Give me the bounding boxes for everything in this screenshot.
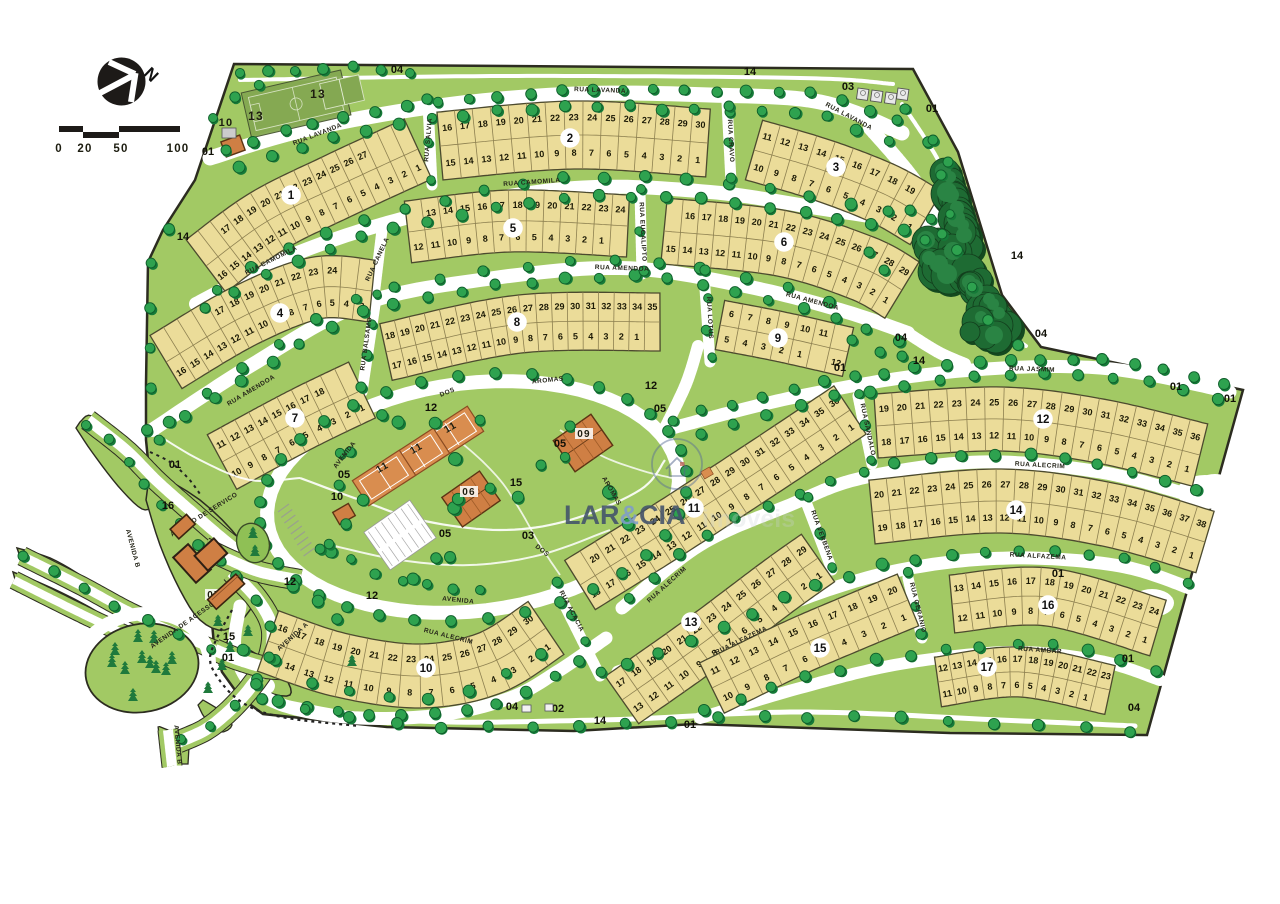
- svg-text:20: 20: [1057, 660, 1069, 672]
- svg-text:6: 6: [606, 148, 612, 158]
- svg-text:11: 11: [975, 610, 986, 621]
- svg-text:10: 10: [219, 117, 234, 129]
- svg-text:17: 17: [1026, 576, 1036, 586]
- svg-text:05: 05: [338, 469, 350, 481]
- svg-text:8: 8: [1028, 606, 1033, 616]
- svg-text:12: 12: [499, 152, 510, 163]
- svg-text:27: 27: [641, 115, 652, 126]
- svg-text:8: 8: [482, 234, 488, 244]
- svg-text:11: 11: [731, 249, 742, 260]
- svg-text:23: 23: [406, 654, 416, 664]
- svg-text:17: 17: [701, 212, 712, 223]
- svg-text:5: 5: [330, 298, 335, 308]
- svg-text:4: 4: [641, 150, 647, 160]
- svg-text:5: 5: [573, 331, 578, 341]
- svg-text:01: 01: [1122, 653, 1134, 665]
- svg-text:8: 8: [514, 317, 521, 329]
- svg-text:23: 23: [459, 312, 471, 324]
- svg-text:22: 22: [785, 222, 797, 234]
- svg-text:2: 2: [677, 153, 683, 163]
- svg-text:01: 01: [222, 652, 234, 664]
- svg-text:20: 20: [547, 200, 557, 210]
- svg-text:13: 13: [951, 660, 963, 672]
- svg-text:16: 16: [1007, 576, 1018, 587]
- svg-text:4: 4: [277, 308, 284, 320]
- svg-text:10: 10: [992, 608, 1003, 619]
- svg-text:16: 16: [685, 211, 696, 222]
- svg-text:13: 13: [698, 246, 709, 257]
- svg-text:13: 13: [983, 513, 993, 523]
- svg-text:04: 04: [506, 701, 519, 713]
- svg-text:23: 23: [569, 112, 579, 122]
- svg-text:14: 14: [682, 245, 693, 256]
- svg-text:28: 28: [539, 302, 550, 313]
- svg-text:32: 32: [601, 301, 611, 311]
- svg-text:13: 13: [248, 109, 264, 123]
- svg-text:05: 05: [654, 403, 666, 415]
- svg-text:19: 19: [495, 117, 506, 128]
- svg-text:27: 27: [1000, 479, 1010, 489]
- svg-text:31: 31: [1073, 486, 1085, 498]
- svg-text:12: 12: [645, 380, 657, 392]
- svg-text:4: 4: [588, 331, 593, 341]
- svg-text:21: 21: [891, 487, 902, 498]
- svg-text:13: 13: [310, 87, 326, 101]
- svg-text:23: 23: [927, 483, 938, 494]
- svg-text:12: 12: [1037, 414, 1050, 426]
- svg-text:24: 24: [970, 397, 980, 407]
- svg-text:19: 19: [877, 522, 888, 533]
- svg-text:11: 11: [430, 239, 441, 250]
- svg-text:28: 28: [1019, 480, 1030, 491]
- svg-text:3: 3: [565, 233, 571, 243]
- svg-text:01: 01: [834, 362, 846, 374]
- svg-text:02: 02: [552, 703, 564, 715]
- svg-text:LAR&CIA: LAR&CIA: [564, 500, 686, 530]
- svg-text:14: 14: [953, 431, 964, 442]
- svg-text:04: 04: [895, 332, 908, 344]
- svg-text:11: 11: [688, 503, 701, 515]
- svg-text:05: 05: [554, 438, 566, 450]
- svg-text:50: 50: [113, 143, 128, 155]
- svg-text:8: 8: [528, 333, 534, 343]
- svg-text:15: 15: [814, 643, 827, 655]
- svg-text:16: 16: [1042, 600, 1055, 612]
- svg-text:11: 11: [481, 339, 492, 351]
- svg-text:33: 33: [1108, 493, 1120, 505]
- svg-text:27: 27: [1027, 399, 1038, 410]
- svg-text:10: 10: [956, 685, 968, 697]
- svg-text:20: 20: [896, 402, 907, 413]
- svg-text:14: 14: [463, 155, 474, 166]
- svg-text:11: 11: [1007, 431, 1017, 441]
- svg-text:3: 3: [833, 162, 839, 174]
- svg-text:28: 28: [659, 116, 670, 127]
- svg-text:6: 6: [1014, 680, 1019, 690]
- svg-text:1: 1: [599, 235, 605, 245]
- svg-text:12: 12: [366, 590, 378, 602]
- svg-text:2: 2: [582, 234, 588, 244]
- svg-text:10: 10: [447, 237, 458, 248]
- svg-text:26: 26: [1008, 398, 1019, 409]
- svg-text:23: 23: [952, 398, 963, 409]
- svg-text:12: 12: [284, 576, 296, 588]
- svg-text:29: 29: [554, 301, 564, 311]
- svg-text:18: 18: [1028, 655, 1039, 666]
- svg-text:10: 10: [331, 491, 343, 503]
- svg-text:6: 6: [781, 237, 787, 249]
- svg-text:11: 11: [942, 688, 953, 700]
- svg-text:35: 35: [647, 302, 657, 312]
- svg-text:06: 06: [462, 487, 476, 498]
- svg-text:7: 7: [499, 232, 505, 242]
- svg-text:13: 13: [971, 431, 981, 441]
- svg-text:09: 09: [577, 429, 591, 440]
- svg-text:01: 01: [202, 146, 214, 158]
- svg-text:26: 26: [623, 114, 634, 125]
- svg-text:1: 1: [288, 190, 295, 202]
- svg-text:9: 9: [775, 333, 781, 345]
- svg-text:10: 10: [420, 663, 433, 675]
- svg-text:14: 14: [1011, 250, 1024, 262]
- svg-text:19: 19: [1063, 579, 1075, 591]
- svg-text:01: 01: [1052, 568, 1064, 580]
- svg-text:17: 17: [899, 435, 910, 446]
- svg-text:14: 14: [913, 355, 926, 367]
- svg-text:01: 01: [1170, 381, 1182, 393]
- svg-text:12: 12: [937, 662, 949, 674]
- svg-text:8: 8: [572, 148, 577, 158]
- svg-text:1: 1: [634, 332, 639, 342]
- svg-text:18: 18: [718, 213, 729, 224]
- svg-text:22: 22: [581, 202, 592, 213]
- svg-text:14: 14: [594, 715, 607, 727]
- svg-text:27: 27: [523, 303, 534, 314]
- svg-text:13: 13: [685, 617, 698, 629]
- svg-text:22: 22: [550, 113, 561, 124]
- svg-text:24: 24: [327, 266, 337, 276]
- svg-text:25: 25: [441, 651, 452, 662]
- svg-text:30: 30: [570, 301, 580, 311]
- svg-text:17: 17: [981, 662, 994, 674]
- svg-text:03: 03: [522, 530, 534, 542]
- svg-text:19: 19: [879, 403, 890, 414]
- svg-text:24: 24: [615, 204, 626, 215]
- svg-text:03: 03: [842, 81, 854, 93]
- svg-text:9: 9: [1011, 607, 1017, 617]
- svg-text:9: 9: [466, 235, 472, 245]
- svg-text:18: 18: [477, 118, 488, 129]
- svg-text:29: 29: [677, 118, 688, 129]
- svg-text:20: 20: [513, 115, 524, 126]
- svg-text:10: 10: [495, 336, 506, 347]
- svg-text:04: 04: [391, 64, 404, 76]
- svg-text:14: 14: [970, 580, 981, 591]
- svg-text:16: 16: [917, 434, 928, 445]
- svg-text:18: 18: [881, 437, 892, 448]
- svg-text:17: 17: [913, 518, 924, 529]
- svg-text:11: 11: [517, 150, 527, 161]
- svg-text:100: 100: [167, 143, 190, 155]
- svg-text:30: 30: [695, 119, 706, 130]
- svg-text:25: 25: [490, 306, 501, 317]
- svg-text:7: 7: [292, 413, 298, 425]
- svg-text:2: 2: [619, 332, 624, 342]
- svg-text:12: 12: [715, 248, 726, 259]
- svg-text:01: 01: [926, 103, 938, 115]
- svg-text:21: 21: [369, 649, 381, 661]
- svg-text:10: 10: [534, 149, 545, 160]
- svg-text:16: 16: [162, 500, 174, 512]
- svg-text:6: 6: [558, 332, 563, 342]
- svg-text:13: 13: [481, 154, 492, 165]
- svg-text:15: 15: [935, 432, 946, 443]
- svg-text:16: 16: [442, 122, 453, 133]
- svg-text:16: 16: [930, 516, 941, 527]
- svg-text:33: 33: [617, 301, 627, 311]
- svg-text:1: 1: [695, 155, 701, 165]
- svg-text:01: 01: [684, 719, 696, 731]
- svg-text:15: 15: [665, 243, 676, 254]
- svg-text:15: 15: [223, 631, 235, 643]
- svg-text:18: 18: [895, 520, 906, 531]
- svg-text:10: 10: [1033, 515, 1044, 526]
- svg-text:2: 2: [567, 133, 573, 145]
- svg-text:32: 32: [1091, 490, 1103, 502]
- svg-text:15: 15: [948, 515, 959, 526]
- svg-text:10: 10: [363, 682, 375, 694]
- svg-text:14: 14: [177, 231, 190, 243]
- svg-text:4: 4: [548, 233, 553, 243]
- svg-text:29: 29: [1064, 403, 1075, 414]
- svg-text:30: 30: [1055, 484, 1066, 495]
- svg-text:30: 30: [1082, 406, 1094, 418]
- svg-text:25: 25: [989, 397, 999, 407]
- svg-text:10: 10: [747, 251, 758, 262]
- svg-text:26: 26: [982, 479, 992, 489]
- svg-text:25: 25: [963, 480, 974, 491]
- svg-text:19: 19: [734, 215, 745, 226]
- svg-text:24: 24: [587, 112, 597, 122]
- svg-text:04: 04: [1128, 702, 1141, 714]
- svg-text:32: 32: [1118, 413, 1130, 425]
- svg-text:05: 05: [439, 528, 451, 540]
- svg-text:0: 0: [55, 143, 63, 155]
- svg-text:31: 31: [1100, 409, 1112, 421]
- svg-text:12: 12: [466, 342, 478, 354]
- svg-text:12: 12: [957, 612, 968, 623]
- svg-text:7: 7: [589, 148, 594, 158]
- svg-text:34: 34: [632, 302, 642, 312]
- svg-text:14: 14: [966, 657, 977, 668]
- svg-text:19: 19: [1043, 657, 1055, 669]
- svg-text:24: 24: [475, 309, 487, 321]
- svg-text:5: 5: [532, 232, 537, 242]
- svg-text:18: 18: [513, 200, 523, 210]
- svg-text:7: 7: [1001, 680, 1007, 690]
- svg-text:15: 15: [445, 157, 456, 168]
- svg-text:14: 14: [1010, 505, 1023, 517]
- svg-text:17: 17: [1013, 654, 1023, 664]
- svg-text:16: 16: [477, 201, 488, 212]
- svg-text:3: 3: [603, 331, 608, 341]
- svg-text:7: 7: [543, 332, 549, 342]
- svg-text:15: 15: [510, 477, 522, 489]
- svg-text:14: 14: [965, 513, 976, 524]
- svg-text:01: 01: [1224, 393, 1236, 405]
- svg-text:31: 31: [586, 301, 596, 311]
- svg-text:21: 21: [915, 401, 926, 412]
- svg-text:22: 22: [909, 485, 920, 496]
- svg-text:14: 14: [744, 66, 757, 78]
- svg-text:16: 16: [997, 654, 1008, 665]
- svg-text:04: 04: [1035, 328, 1048, 340]
- svg-text:3: 3: [659, 152, 665, 162]
- svg-text:12: 12: [413, 241, 424, 252]
- svg-text:15: 15: [988, 578, 999, 589]
- svg-text:12: 12: [425, 402, 437, 414]
- svg-text:13: 13: [953, 583, 964, 594]
- svg-text:20: 20: [751, 217, 762, 228]
- svg-text:22: 22: [387, 652, 398, 663]
- svg-text:9: 9: [554, 148, 560, 158]
- svg-text:10: 10: [1024, 432, 1035, 443]
- svg-text:imóveis: imóveis: [702, 505, 795, 533]
- svg-text:5: 5: [624, 149, 630, 159]
- svg-text:23: 23: [308, 266, 320, 278]
- svg-text:22: 22: [933, 399, 944, 410]
- svg-text:8: 8: [407, 687, 412, 697]
- svg-text:25: 25: [605, 113, 616, 124]
- svg-text:12: 12: [989, 431, 999, 441]
- svg-text:20: 20: [874, 489, 885, 500]
- svg-text:21: 21: [768, 219, 779, 230]
- svg-text:24: 24: [945, 481, 956, 492]
- svg-text:23: 23: [598, 203, 609, 214]
- svg-text:20: 20: [77, 143, 92, 155]
- svg-text:29: 29: [1037, 482, 1048, 493]
- svg-text:5: 5: [510, 223, 517, 235]
